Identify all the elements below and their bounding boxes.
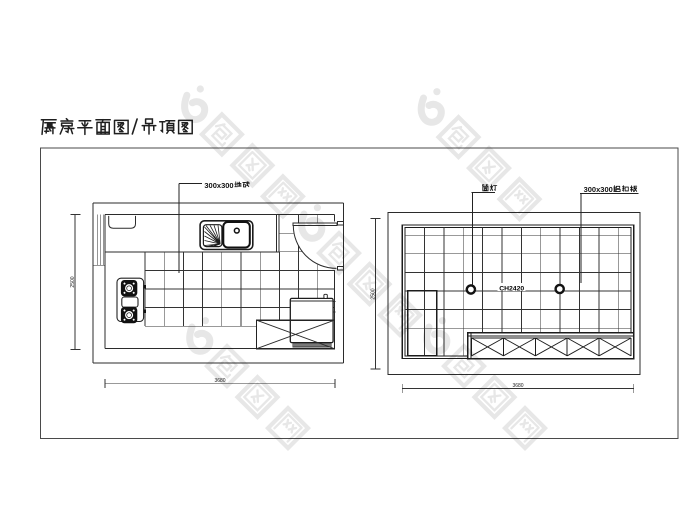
svg-text:3680: 3680 bbox=[512, 383, 523, 389]
svg-text:2500: 2500 bbox=[70, 276, 76, 287]
svg-text:CH2420: CH2420 bbox=[499, 286, 524, 293]
svg-text:300x300: 300x300 bbox=[584, 185, 613, 194]
svg-text:300x300: 300x300 bbox=[204, 181, 233, 190]
